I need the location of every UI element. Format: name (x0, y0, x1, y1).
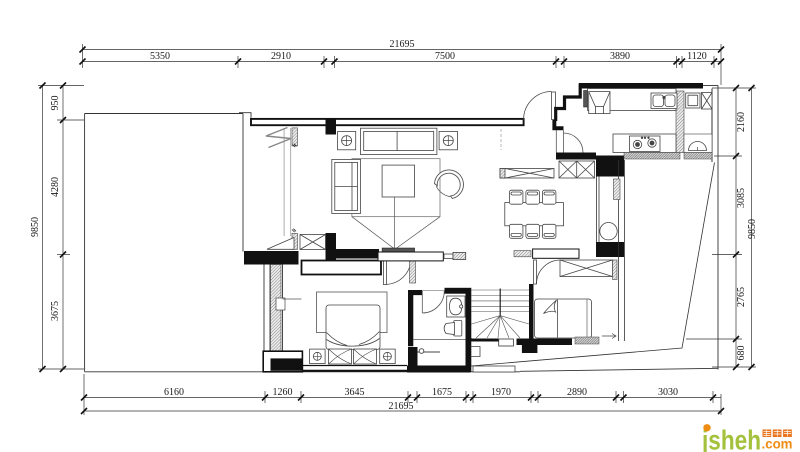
svg-text:.com: .com (762, 437, 793, 452)
svg-text:3085: 3085 (736, 188, 747, 208)
svg-text:3890: 3890 (610, 51, 630, 62)
svg-text:2910: 2910 (271, 51, 291, 62)
svg-text:2160: 2160 (736, 112, 747, 132)
svg-text:3030: 3030 (658, 387, 678, 398)
svg-text:4280: 4280 (50, 177, 61, 197)
svg-text:1675: 1675 (432, 387, 452, 398)
svg-text:9850: 9850 (30, 217, 41, 237)
svg-text:3675: 3675 (50, 301, 61, 321)
svg-text:21695: 21695 (389, 401, 414, 412)
svg-text:6160: 6160 (164, 387, 184, 398)
svg-text:2890: 2890 (567, 387, 587, 398)
svg-text:1120: 1120 (687, 51, 707, 62)
svg-text:2765: 2765 (736, 287, 747, 307)
svg-text:1260: 1260 (273, 387, 293, 398)
svg-text:7500: 7500 (435, 51, 455, 62)
svg-text:21695: 21695 (390, 39, 415, 50)
svg-text:680: 680 (736, 346, 747, 361)
svg-text:3645: 3645 (345, 387, 365, 398)
svg-text:9850: 9850 (747, 219, 758, 239)
svg-text:5350: 5350 (150, 51, 170, 62)
svg-text:950: 950 (50, 96, 61, 111)
svg-text:1970: 1970 (491, 387, 511, 398)
